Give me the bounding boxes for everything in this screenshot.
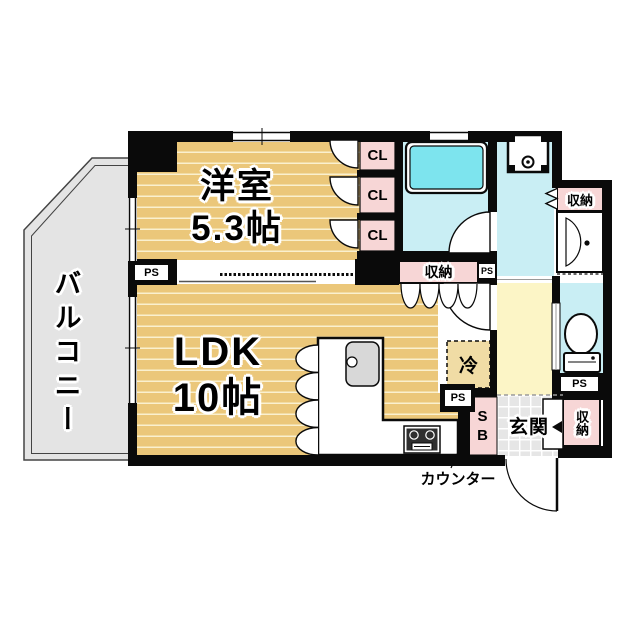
bathtub (406, 142, 487, 193)
ps-label-left: PS (135, 265, 168, 280)
ps-label-mid: PS (479, 264, 495, 278)
shoebox-label: SB (475, 404, 490, 448)
ps-label-kitchen: PS (445, 390, 471, 406)
toilet-sliding-door (552, 303, 560, 370)
western-room-size: 5.3帖 (191, 208, 283, 250)
ldk-size: 10帖 (173, 375, 264, 421)
window-balcony-western-room (125, 198, 140, 261)
washbasin (557, 212, 603, 274)
closet2-door (330, 177, 358, 205)
kitchen-counter (296, 338, 458, 455)
floorplan: 洋室 5.3帖 LDK 10帖 バルコニー CL CL CL 収納 収納 収納 … (0, 0, 640, 640)
closet1-door (330, 140, 358, 168)
faucet (347, 357, 357, 367)
western-room-name: 洋室 (200, 166, 274, 208)
closet1-label: CL (363, 146, 392, 164)
entrance-storage-label: 収納 (569, 402, 594, 444)
fridge-label: 冷 (447, 352, 490, 376)
entrance-label: 玄関 (498, 414, 560, 436)
counter-label: カウンター (406, 468, 510, 488)
window-top-bathroom (430, 131, 468, 142)
structure-layer (0, 0, 640, 640)
ldk-storage-label: 収納 (399, 263, 478, 281)
washing-machine-pan (508, 135, 548, 172)
ldk-label: LDK 10帖 (118, 327, 318, 423)
western-room-label: 洋室 5.3帖 (147, 163, 327, 253)
closet3-label: CL (363, 226, 392, 244)
balcony-label: バルコニー (50, 246, 82, 461)
ldk-name: LDK (174, 329, 262, 375)
closet2-label: CL (363, 186, 392, 204)
window-top-western-room (233, 128, 290, 145)
bathroom-door (449, 212, 490, 253)
washroom-storage-label: 収納 (557, 190, 603, 208)
toilet (564, 314, 600, 372)
closet3-door (330, 220, 358, 248)
ps-label-toilet: PS (561, 377, 598, 391)
washroom-storage-bifold-door (546, 189, 557, 210)
stove (404, 426, 440, 453)
front-door-swing-arc (506, 459, 557, 511)
